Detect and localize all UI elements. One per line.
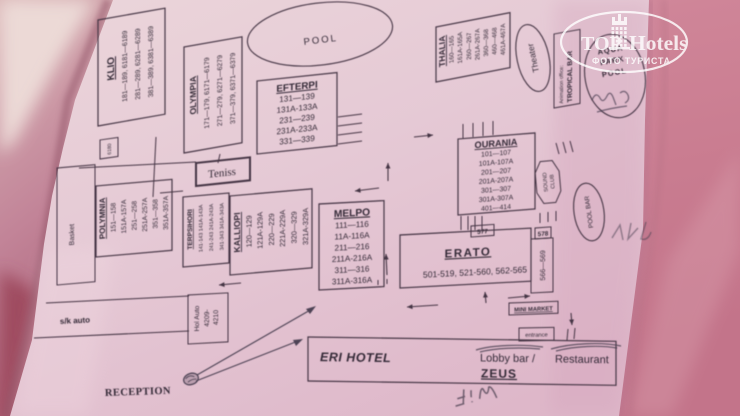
svg-text:ERATO: ERATO [445, 246, 492, 260]
svg-text:577: 577 [477, 228, 488, 236]
svg-text:KLIO: KLIO [106, 56, 117, 82]
svg-text:251—258: 251—258 [132, 200, 139, 230]
svg-text:entrance: entrance [525, 332, 548, 338]
svg-text:251A-257A: 251A-257A [142, 197, 149, 232]
svg-text:TOP: TOP [581, 33, 622, 55]
svg-text:120—129: 120—129 [244, 215, 253, 248]
svg-text:351A-357A: 351A-357A [163, 195, 170, 230]
svg-text:Animation office:: Animation office: [559, 65, 565, 104]
svg-text:111—116: 111—116 [335, 220, 369, 231]
svg-text:Restaurant: Restaurant [555, 353, 609, 366]
svg-text:460—468: 460—468 [492, 26, 499, 55]
svg-text:Basket: Basket [69, 224, 76, 246]
svg-text:160—165: 160—165 [449, 35, 456, 64]
svg-text:360—368: 360—368 [483, 28, 490, 57]
svg-text:Hotels: Hotels [629, 31, 688, 55]
svg-text:121A-129A: 121A-129A [256, 211, 265, 249]
svg-text:THALIA: THALIA [437, 35, 447, 68]
svg-text:260—267: 260—267 [466, 31, 473, 60]
svg-text:321A-329A: 321A-329A [301, 207, 310, 245]
svg-text:s/k auto: s/k auto [60, 315, 91, 326]
svg-text:220—229: 220—229 [267, 213, 276, 246]
svg-text:MELPO: MELPO [334, 207, 370, 220]
svg-text:4209-: 4209- [204, 309, 211, 327]
svg-text:181—189, 6181—6189: 181—189, 6181—6189 [122, 30, 129, 103]
svg-text:151—158: 151—158 [111, 202, 118, 232]
svg-text:RECEPTION: RECEPTION [105, 386, 171, 399]
svg-text:261A-267A: 261A-267A [474, 27, 481, 61]
svg-text:KALLIOPI: KALLIOPI [232, 212, 242, 253]
svg-text:11A-116A: 11A-116A [334, 231, 370, 242]
svg-text:6180: 6180 [107, 143, 113, 155]
svg-text:POLYMNIA: POLYMNIA [98, 197, 107, 239]
svg-text:241-243 241A-243A: 241-243 241A-243A [209, 203, 215, 251]
svg-text:211—216: 211—216 [335, 242, 370, 253]
svg-text:Hol Auto: Hol Auto [194, 305, 201, 331]
svg-text:141-143 141A-143A: 141-143 141A-143A [199, 204, 205, 252]
svg-text:221A-229A: 221A-229A [278, 209, 287, 247]
svg-text:381—389, 6381—6389: 381—389, 6381—6389 [148, 25, 155, 98]
svg-text:ФОТО ТУРИСТА: ФОТО ТУРИСТА [592, 56, 671, 66]
svg-text:341-343 341A-343A: 341-343 341A-343A [220, 202, 226, 250]
svg-text:4210: 4210 [213, 310, 220, 326]
svg-text:271—279, 6271—6279: 271—279, 6271—6279 [217, 54, 224, 127]
svg-text:TERPSIHORI: TERPSIHORI [187, 209, 194, 250]
svg-text:ZEUS: ZEUS [481, 366, 517, 381]
svg-text:Lobby bar /: Lobby bar / [480, 352, 536, 365]
svg-text:320—329: 320—329 [290, 211, 299, 244]
svg-text:461A-467A: 461A-467A [500, 22, 507, 56]
svg-text:311—316: 311—316 [335, 264, 370, 275]
svg-text:ERI HOTEL: ERI HOTEL [320, 350, 391, 365]
svg-text:566—569: 566—569 [540, 250, 547, 281]
svg-text:371—379, 6371—6379: 371—379, 6371—6379 [230, 52, 237, 125]
svg-text:151A-157A: 151A-157A [121, 199, 128, 234]
svg-text:161A-165A: 161A-165A [457, 31, 464, 65]
svg-text:171—179, 6171—6179: 171—179, 6171—6179 [204, 57, 211, 130]
svg-text:578: 578 [538, 231, 549, 239]
svg-text:OLYMPIA: OLYMPIA [188, 75, 198, 116]
svg-text:CLUB: CLUB [549, 174, 556, 189]
svg-text:281—289, 6281—6289: 281—289, 6281—6289 [135, 28, 142, 101]
svg-text:351—358: 351—358 [153, 199, 160, 229]
